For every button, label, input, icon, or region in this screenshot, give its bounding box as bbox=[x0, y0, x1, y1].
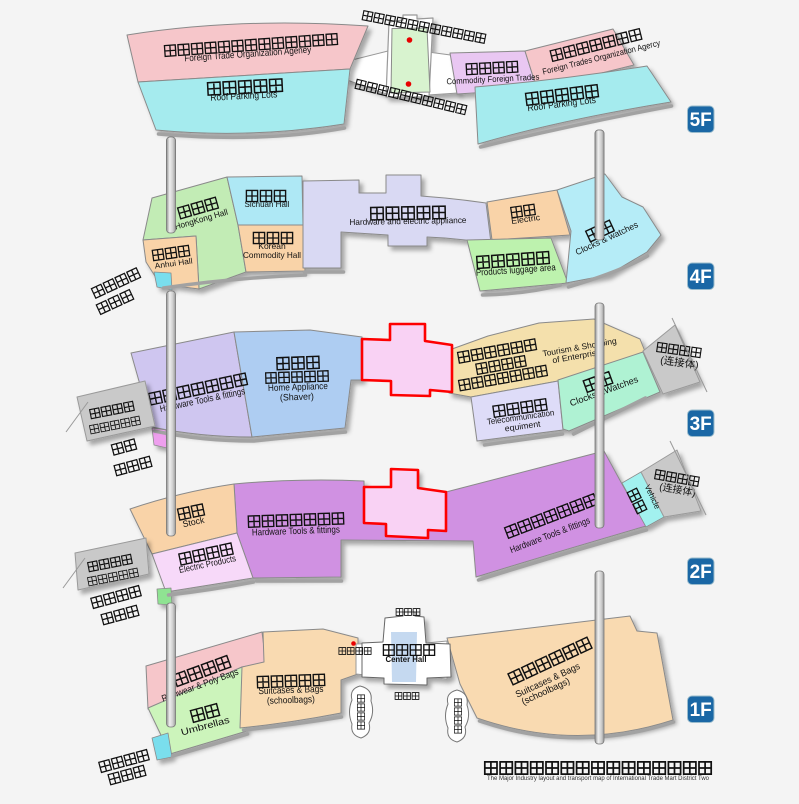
svg-text:5F: 5F bbox=[690, 110, 712, 131]
svg-text:Commodity Hall: Commodity Hall bbox=[243, 250, 301, 260]
svg-text:4F: 4F bbox=[690, 267, 712, 288]
svg-text:2F: 2F bbox=[690, 562, 712, 583]
svg-text:1F: 1F bbox=[690, 700, 712, 721]
svg-text:The Major Industry layout and: The Major Industry layout and transport … bbox=[487, 775, 709, 782]
svg-text:Hardware and electric applianc: Hardware and electric appliance bbox=[349, 215, 466, 227]
svg-text:3F: 3F bbox=[690, 414, 712, 435]
svg-text:(schoolbags): (schoolbags) bbox=[267, 693, 315, 706]
svg-text:Sichuan Hall: Sichuan Hall bbox=[245, 199, 290, 209]
svg-text:Center Hall: Center Hall bbox=[386, 654, 427, 664]
svg-text:(Shaver): (Shaver) bbox=[280, 391, 314, 402]
